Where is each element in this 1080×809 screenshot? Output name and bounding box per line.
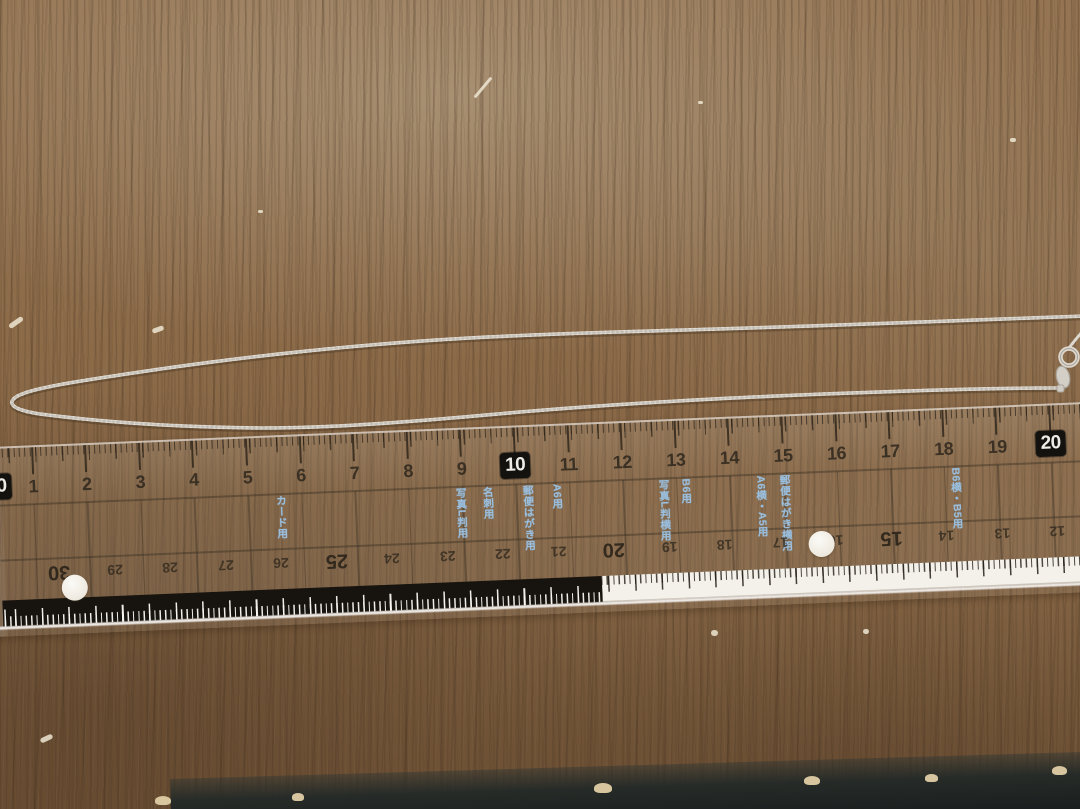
ruler-cm-number: 13 bbox=[666, 448, 686, 473]
ruler-reverse-number: 29 bbox=[106, 556, 123, 585]
ruler-cm-number: 7 bbox=[349, 461, 359, 485]
dust-speck bbox=[8, 316, 24, 329]
paper-size-label: 郵便はがき用 bbox=[520, 485, 538, 552]
ruler-reverse-number: 24 bbox=[384, 544, 401, 573]
ruler-grid-line bbox=[87, 502, 92, 597]
paper-size-label: 写真L判用 bbox=[454, 487, 471, 538]
dust-speck bbox=[40, 733, 54, 743]
ruler-grid-line bbox=[33, 504, 38, 599]
ruler-cm-number: 18 bbox=[934, 437, 954, 462]
ruler-grid-line bbox=[515, 484, 520, 579]
ruler: KUTSUWA 01234567891011121314151617181920… bbox=[0, 400, 1080, 638]
necklace-chain bbox=[0, 0, 1080, 809]
dust-speck bbox=[711, 630, 718, 636]
ruler-cm-number: 3 bbox=[135, 470, 145, 494]
paper-size-label: A6用 bbox=[549, 483, 565, 509]
paper-size-label: 名刺用 bbox=[481, 486, 497, 520]
ruler-cm-number: 11 bbox=[559, 452, 578, 477]
ruler-reverse-number: 13 bbox=[994, 519, 1011, 548]
ruler-reverse-number: 26 bbox=[273, 549, 290, 578]
paper-size-label: B6用 bbox=[678, 478, 694, 504]
necklace-clasp bbox=[1054, 328, 1080, 392]
ruler-cm-number: 14 bbox=[719, 445, 739, 470]
ruler-cm-number: 20 bbox=[1035, 430, 1066, 457]
ruler-cm-number: 4 bbox=[189, 467, 199, 491]
ruler-cm-number: 9 bbox=[456, 457, 466, 481]
ruler-cm-number: 17 bbox=[880, 439, 900, 464]
paper-size-label: B6横・B5用 bbox=[948, 467, 966, 529]
ruler-reverse-number: 20 bbox=[602, 535, 625, 564]
dust-speck bbox=[473, 77, 492, 99]
wood-edge-chip bbox=[1052, 766, 1067, 775]
table-edge bbox=[170, 745, 1080, 809]
dust-speck bbox=[863, 629, 869, 634]
paper-size-label: カード用 bbox=[274, 495, 291, 540]
ruler-grid-line bbox=[569, 482, 574, 577]
dust-speck bbox=[698, 101, 703, 104]
ruler-cm-number: 19 bbox=[987, 434, 1007, 459]
ruler-reverse-number: 17 bbox=[772, 528, 789, 557]
ruler-grid-line bbox=[194, 498, 199, 593]
ruler-reverse-number: 12 bbox=[1049, 517, 1066, 546]
ruler-cm-number: 8 bbox=[403, 459, 413, 483]
ruler-cm-number: 2 bbox=[82, 472, 92, 496]
ruler-reverse-number: 23 bbox=[439, 542, 456, 571]
ruler-grid-line bbox=[355, 491, 360, 586]
ruler-cm-number: 10 bbox=[500, 452, 531, 479]
wood-edge-chip bbox=[292, 793, 304, 801]
ruler-cm-number: 6 bbox=[296, 463, 306, 487]
ruler-mm-ticks bbox=[0, 402, 1080, 471]
wood-grain-texture bbox=[0, 0, 1080, 809]
ruler-reverse-number: 25 bbox=[325, 546, 348, 575]
ruler-grid-line bbox=[247, 495, 252, 590]
ruler-reverse-number: 19 bbox=[661, 533, 678, 562]
dust-speck bbox=[152, 325, 165, 334]
wood-grain-texture-2 bbox=[0, 0, 1080, 809]
ruler-reverse-number: 14 bbox=[938, 522, 955, 551]
ruler-cm-number: 0 bbox=[0, 473, 12, 500]
ruler-reverse-number: 18 bbox=[716, 531, 733, 560]
ruler-cm-number: 12 bbox=[612, 450, 632, 475]
wood-edge-chip bbox=[925, 774, 938, 782]
wood-edge-chip bbox=[804, 776, 820, 785]
ruler-cm-number: 1 bbox=[28, 474, 38, 498]
ruler-cm-number: 5 bbox=[242, 465, 252, 489]
ruler-reverse-number: 15 bbox=[879, 524, 902, 553]
wood-edge-chip bbox=[155, 796, 171, 805]
ruler-reverse-number: 21 bbox=[550, 537, 567, 566]
ruler-horizontal-line bbox=[0, 458, 1080, 507]
dust-speck bbox=[258, 210, 263, 213]
ruler-reverse-number: 22 bbox=[494, 540, 511, 569]
dust-speck bbox=[1010, 138, 1016, 142]
photo-of-necklace-on-desk: KUTSUWA 01234567891011121314151617181920… bbox=[0, 0, 1080, 809]
ruler-grid-line bbox=[408, 489, 413, 584]
ruler-grid-line bbox=[140, 500, 145, 595]
ruler-bottom-scale-black bbox=[2, 576, 603, 627]
ruler-cm-number: 15 bbox=[773, 443, 793, 468]
ruler-cm-number: 16 bbox=[827, 441, 847, 466]
ruler-grid-line bbox=[301, 493, 306, 588]
paper-size-label: A6横・A5用 bbox=[753, 475, 771, 537]
ruler-reverse-number: 27 bbox=[217, 551, 234, 580]
wood-edge-chip bbox=[594, 783, 612, 793]
ruler-reverse-number: 28 bbox=[162, 553, 179, 582]
